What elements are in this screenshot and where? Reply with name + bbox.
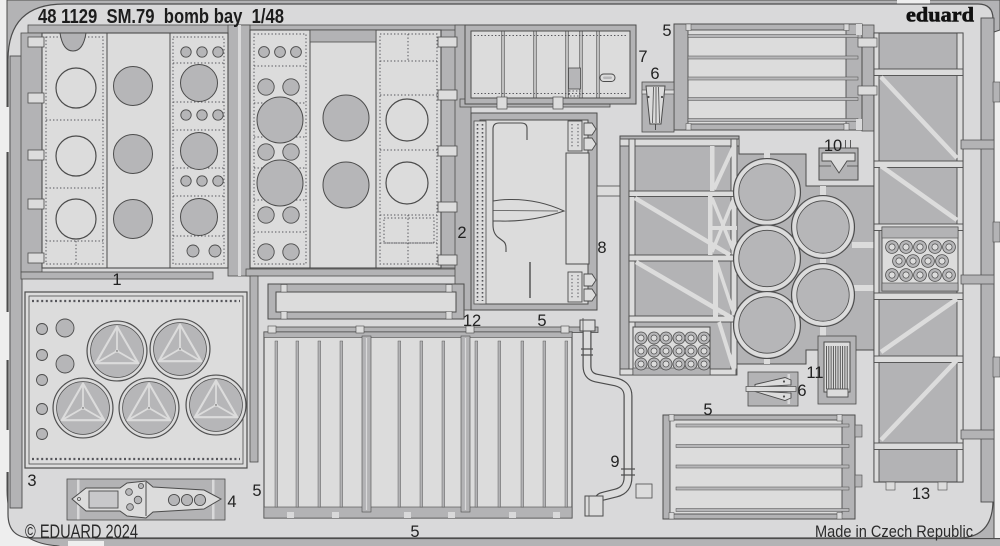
svg-text:13: 13 <box>912 485 930 503</box>
svg-text:5: 5 <box>703 401 712 419</box>
svg-text:12: 12 <box>463 312 481 330</box>
svg-text:3: 3 <box>27 472 36 490</box>
svg-text:eduard: eduard <box>906 3 974 27</box>
svg-text:9: 9 <box>610 453 619 471</box>
svg-text:5: 5 <box>252 482 261 500</box>
svg-text:4: 4 <box>227 493 236 511</box>
svg-text:6: 6 <box>797 382 806 400</box>
svg-text:48 1129 SM.79 bomb bay 1/48: 48 1129 SM.79 bomb bay 1/48 <box>38 6 284 28</box>
svg-text:5: 5 <box>662 22 671 40</box>
svg-text:5: 5 <box>537 312 546 330</box>
svg-text:11: 11 <box>806 364 823 382</box>
svg-text:8: 8 <box>597 239 606 257</box>
svg-text:10: 10 <box>824 137 842 155</box>
svg-text:© EDUARD 2024: © EDUARD 2024 <box>25 522 138 543</box>
svg-text:7: 7 <box>638 48 647 66</box>
svg-text:6: 6 <box>650 65 659 83</box>
svg-text:5: 5 <box>410 523 419 541</box>
svg-text:2: 2 <box>457 224 466 242</box>
svg-text:1: 1 <box>112 271 121 289</box>
svg-text:Made in Czech Republic: Made in Czech Republic <box>815 523 973 541</box>
